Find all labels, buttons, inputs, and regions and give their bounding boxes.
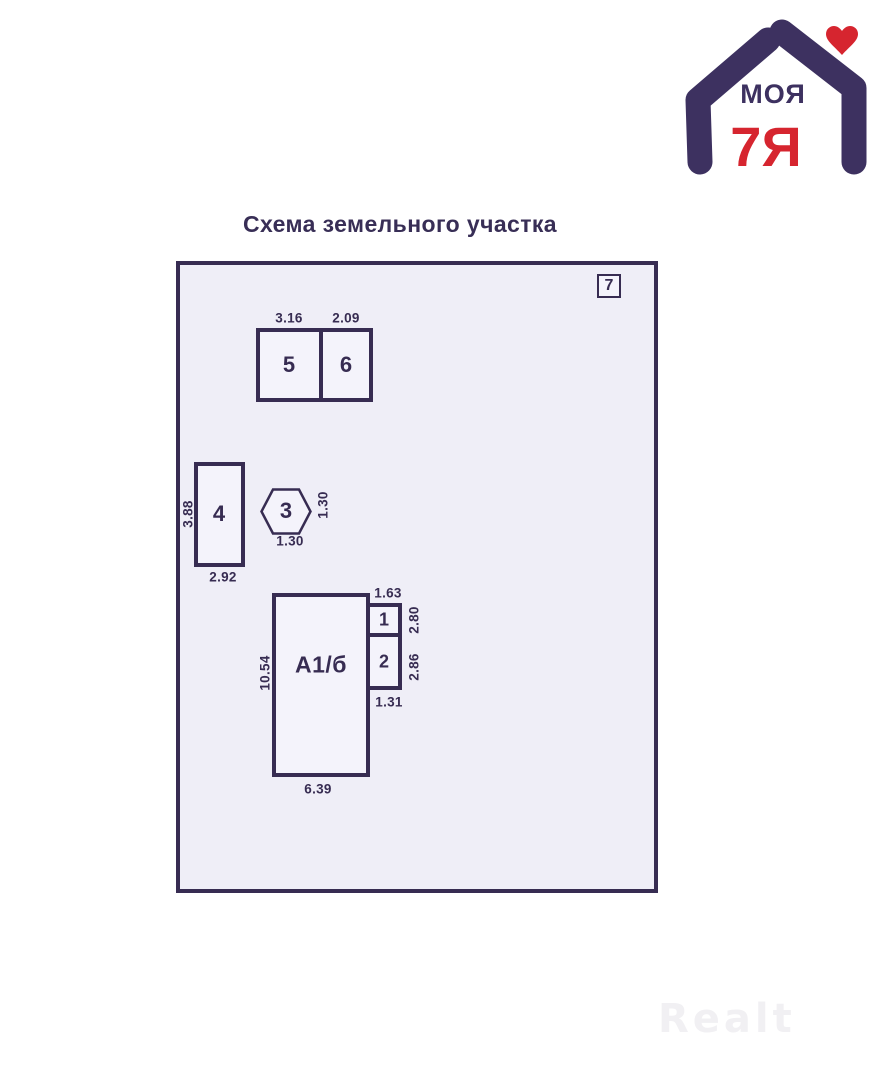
realt-watermark: Realt — [658, 996, 858, 1042]
building-5-6-outline — [256, 328, 373, 402]
dimension-b4-height: 3.88 — [181, 500, 196, 527]
dimension-annex1-width: 1.63 — [374, 586, 401, 601]
building-5-label: 5 — [283, 352, 295, 378]
logo-text-7ya: 7Я — [730, 115, 801, 178]
dimension-b4-width: 2.92 — [209, 570, 236, 585]
dimension-a1b-height: 10.54 — [258, 655, 273, 690]
dimension-annex1-height: 2.80 — [407, 606, 422, 633]
dimension-b3-width: 1.30 — [276, 534, 303, 549]
building-6-label: 6 — [340, 352, 352, 378]
land-plot-outline: 7 3.16 2.09 5 6 4 3.88 2.92 3 1.30 1.30 … — [176, 261, 658, 893]
logo-text-moya: МОЯ — [740, 79, 806, 109]
annex-2-label: 2 — [379, 652, 389, 673]
building-5-6-divider — [319, 332, 323, 398]
page-title: Схема земельного участка — [150, 211, 650, 238]
moya-7ya-logo: МОЯ 7Я — [676, 16, 876, 178]
dimension-b6-width: 2.09 — [332, 311, 359, 326]
plot-number-badge: 7 — [597, 274, 621, 298]
dimension-a1b-width: 6.39 — [304, 782, 331, 797]
building-a1b-outline — [272, 593, 370, 777]
building-a1b-label: А1/б — [295, 652, 347, 679]
dimension-b3-height: 1.30 — [316, 491, 331, 518]
dimension-annex2-height: 2.86 — [407, 653, 422, 680]
building-4-label: 4 — [213, 501, 225, 527]
dimension-b5-width: 3.16 — [275, 311, 302, 326]
building-3-label: 3 — [280, 498, 292, 524]
annex-1-label: 1 — [379, 610, 389, 631]
house-heart-logo-graphic: МОЯ 7Я — [676, 16, 876, 178]
heart-icon — [826, 26, 858, 55]
dimension-annex2-width: 1.31 — [375, 695, 402, 710]
